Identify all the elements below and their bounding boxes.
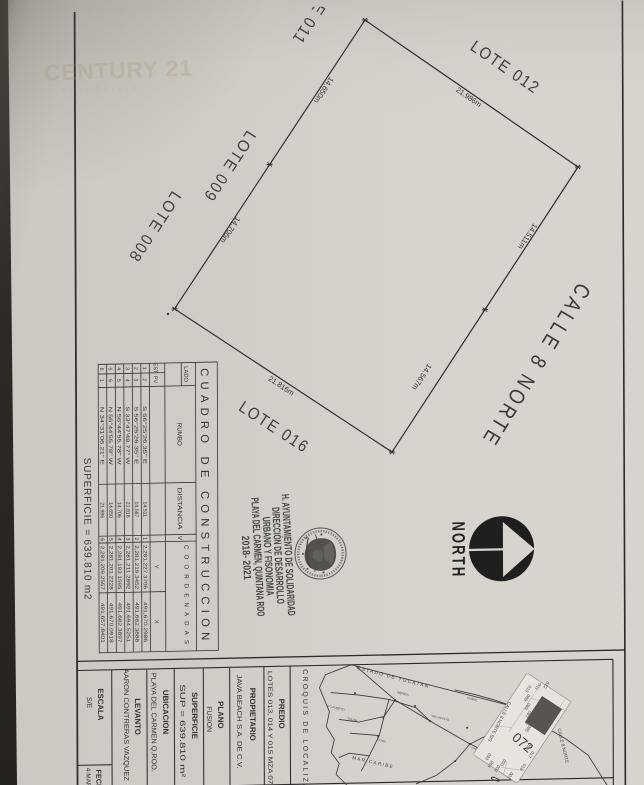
svg-text:Y: Y: [153, 565, 159, 569]
svg-text:JAVA BEACH S.A. DE C.V.: JAVA BEACH S.A. DE C.V.: [235, 674, 242, 768]
svg-text:RUMBO: RUMBO: [175, 423, 182, 446]
svg-text:14.706: 14.706: [116, 502, 122, 518]
svg-text:NORTH: NORTH: [448, 521, 468, 578]
svg-text:PLAYA DEL CARMEN Q.ROO.: PLAYA DEL CARMEN Q.ROO.: [149, 673, 156, 772]
svg-text:491,670.2986: 491,670.2986: [142, 602, 148, 642]
svg-text:2: 2: [141, 378, 147, 381]
svg-text:LADO: LADO: [182, 366, 189, 382]
svg-text:N 34°31'06.21" E: N 34°31'06.21" E: [98, 407, 104, 466]
svg-text:X: X: [153, 620, 159, 624]
svg-text:N 56°44'55.78" W: N 56°44'55.78" W: [107, 407, 113, 465]
svg-text:SUPERFICIE: SUPERFICIE: [190, 692, 199, 739]
svg-text:AARON CONTRERAS VAZQUEZ: AARON CONTRERAS VAZQUEZ: [122, 669, 129, 781]
svg-text:LOTES 013, 014 Y 015 MZA 073: LOTES 013, 014 Y 015 MZA 073: [266, 671, 273, 785]
svg-text:DISTANCIA: DISTANCIA: [176, 487, 183, 530]
svg-text:LEVANTO: LEVANTO: [133, 698, 142, 735]
svg-text:5: 5: [115, 379, 121, 382]
svg-text:FECHA: FECHA: [94, 769, 103, 785]
svg-text:FUSION: FUSION: [205, 706, 212, 732]
svg-text:SUPERFICIE = 639.810 m2: SUPERFICIE = 639.810 m2: [81, 458, 93, 601]
svg-text:491,694.5251: 491,694.5251: [125, 602, 131, 642]
svg-text:14.650: 14.650: [107, 502, 113, 518]
svg-text:4-MARZO-2021: 4-MARZO-2021: [84, 768, 91, 785]
svg-text:491,682.3888: 491,682.3888: [133, 602, 139, 642]
svg-text:6: 6: [99, 538, 105, 541]
svg-text:3: 3: [124, 367, 130, 370]
svg-text:ESCALA: ESCALA: [96, 688, 105, 721]
svg-text:21.986: 21.986: [99, 502, 105, 518]
svg-text:S/E: S/E: [85, 697, 93, 709]
svg-text:2,281,227.3706: 2,281,227.3706: [142, 545, 148, 589]
svg-text:PREDIO: PREDIO: [277, 699, 286, 729]
svg-text:3: 3: [132, 378, 138, 381]
svg-text:N 56°44'55.78" W: N 56°44'55.78" W: [115, 406, 121, 464]
svg-text:1: 1: [98, 379, 104, 382]
svg-text:1: 1: [142, 537, 148, 540]
svg-text:5: 5: [107, 367, 113, 370]
svg-text:21.816: 21.816: [124, 502, 130, 518]
svg-text:2,281,211.2892: 2,281,211.2892: [124, 545, 130, 589]
svg-text:2,281,209.2557: 2,281,209.2557: [99, 546, 105, 590]
svg-text:PV: PV: [152, 376, 158, 384]
svg-text:PROPIETARIO: PROPIETARIO: [248, 688, 257, 741]
svg-text:2: 2: [133, 537, 139, 540]
svg-text:4: 4: [115, 367, 121, 370]
svg-text:CUADRO DE CONSTRUCCION: CUADRO DE CONSTRUCCION: [198, 368, 211, 644]
svg-text:4: 4: [116, 538, 122, 541]
svg-text:S 56°25'26.35" E: S 56°25'26.35" E: [132, 406, 138, 465]
svg-text:14.567: 14.567: [133, 501, 139, 517]
svg-text:2,281,219.3452: 2,281,219.3452: [133, 545, 139, 589]
svg-text:PLANO: PLANO: [216, 701, 225, 728]
svg-text:5: 5: [107, 538, 113, 541]
svg-text:S 33°47'48.77" W: S 33°47'48.77" W: [124, 406, 130, 464]
svg-text:4: 4: [124, 379, 130, 382]
svg-text:2,281,201.2228: 2,281,201.2228: [107, 546, 113, 590]
svg-text:UBICACION: UBICACION: [161, 690, 170, 735]
svg-text:491,682.3897: 491,682.3897: [116, 602, 122, 642]
svg-text:6: 6: [98, 368, 104, 371]
svg-text:2,281,193.1595: 2,281,193.1595: [116, 545, 122, 589]
svg-text:491,657.8401: 491,657.8401: [99, 603, 105, 643]
svg-text:491,670.0918: 491,670.0918: [108, 603, 114, 643]
svg-text:6: 6: [107, 379, 113, 382]
svg-text:3: 3: [124, 538, 130, 541]
svg-text:14.511: 14.511: [141, 501, 147, 517]
svg-text:2018- 2021: 2018- 2021: [239, 535, 253, 580]
svg-text:SUP = 639.810 m²: SUP = 639.810 m²: [178, 684, 187, 778]
svg-text:2: 2: [132, 367, 138, 370]
svg-text:S 56°25'26.35" E: S 56°25'26.35" E: [141, 406, 147, 465]
svg-text:CROQUIS DE LOCALIZACION: CROQUIS DE LOCALIZACION: [301, 669, 309, 785]
svg-text:EST: EST: [152, 363, 158, 374]
svg-text:1: 1: [141, 367, 147, 370]
